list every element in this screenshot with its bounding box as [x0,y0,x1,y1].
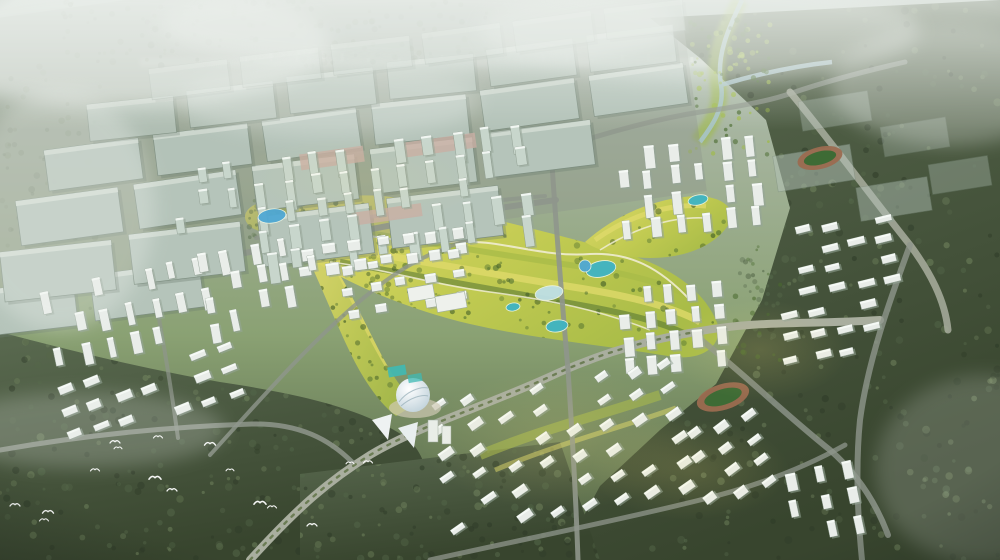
masterplan-rendering [0,0,1000,560]
vignette [0,0,1000,560]
masterplan-canvas [0,0,1000,560]
